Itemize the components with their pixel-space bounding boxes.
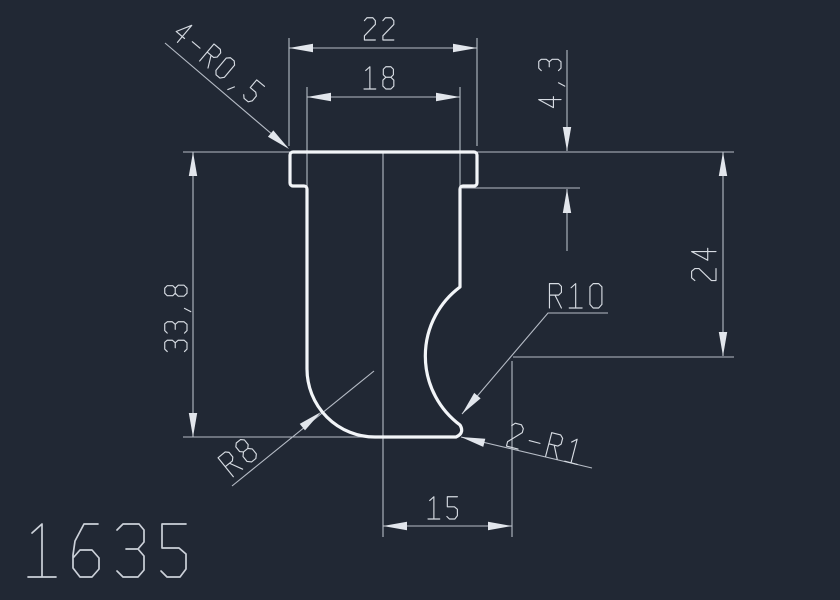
arrowhead	[719, 152, 727, 176]
arrowhead	[268, 130, 292, 152]
dim-flange-thickness-text	[539, 59, 565, 107]
arrowhead	[488, 522, 512, 530]
dim-flange-width-text	[364, 18, 393, 40]
callout-corner-fillets-text	[169, 20, 265, 106]
arrowhead	[453, 44, 477, 52]
dim-radius-center-offset-text	[428, 497, 457, 519]
callout-bottom-left-radius-text	[218, 437, 258, 476]
arrowhead	[383, 522, 407, 530]
arrowhead	[189, 152, 197, 176]
arrowhead	[307, 93, 331, 101]
arrowhead	[719, 332, 727, 356]
arrowhead	[289, 44, 313, 52]
leader-line	[462, 313, 608, 414]
dim-flange-width-group[interactable]	[289, 38, 477, 146]
dim-radius-center-offset-group[interactable]	[383, 152, 512, 537]
arrowhead	[563, 127, 571, 151]
dim-radius-center-height-group[interactable]	[477, 152, 734, 357]
dim-overall-height-text	[165, 285, 191, 351]
leader-profile-radius-group[interactable]	[462, 313, 608, 414]
arrowhead	[436, 93, 460, 101]
dim-body-width-text	[364, 67, 394, 89]
cad-drawing-canvas[interactable]	[0, 0, 840, 600]
leader-bottom-left-radius-group[interactable]	[232, 371, 374, 486]
callout-profile-radius-text	[549, 284, 601, 308]
dim-radius-center-height-text	[692, 248, 716, 280]
arrowhead	[563, 189, 571, 213]
leader-line	[232, 371, 374, 486]
callout-bottom-fillets-text	[506, 423, 583, 465]
arrowhead	[460, 433, 485, 447]
drawing-number-text	[28, 524, 186, 577]
dim-flange-thickness-group[interactable]	[462, 50, 580, 251]
cad-drawing	[0, 0, 840, 600]
arrowhead	[300, 409, 324, 431]
arrowhead	[189, 413, 197, 437]
